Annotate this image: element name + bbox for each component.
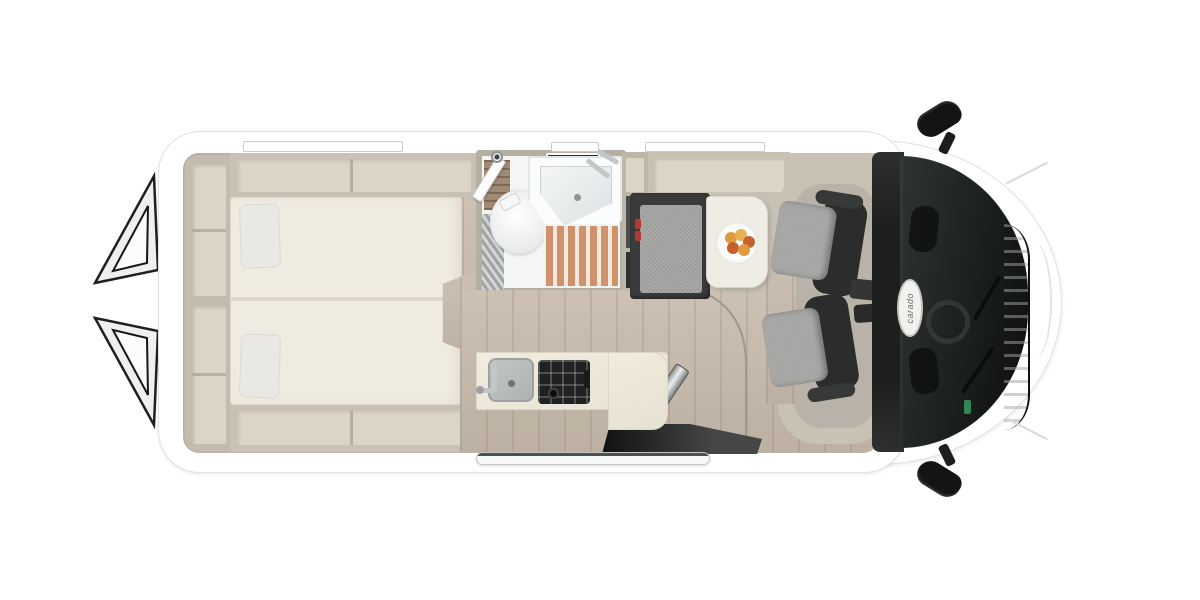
side-window (243, 141, 403, 152)
mirror-arm (938, 131, 957, 155)
bench-cushion (640, 205, 702, 293)
kitchen-counter-extension (608, 352, 668, 430)
headrest-reflection (908, 347, 941, 396)
seat-cushion (760, 306, 829, 388)
wardrobe-shelf (626, 158, 644, 192)
front-grille (1004, 224, 1030, 430)
side-mirror (913, 96, 966, 142)
campervan-floorplan: carado (0, 0, 1200, 600)
hood-seam (1006, 162, 1048, 185)
shelf-divider (192, 229, 226, 232)
side-window (645, 142, 765, 152)
steering-wheel (926, 300, 970, 344)
door-hinge (491, 151, 503, 163)
gas-hob-grate (538, 360, 590, 404)
sink-drain (508, 380, 515, 387)
windshield-sticker (964, 400, 971, 414)
carado-logo-badge: carado (897, 279, 923, 337)
side-window (551, 142, 599, 152)
shelf-divider (192, 373, 226, 376)
seat-cushion (769, 199, 838, 281)
shelf-divider (350, 410, 353, 445)
kitchen-faucet-base (476, 386, 484, 394)
hood-seam (1006, 418, 1048, 441)
shelf-compartment (237, 159, 471, 192)
seatbelt-buckle (635, 231, 641, 241)
seatbelt-buckle (635, 219, 641, 229)
brand-logo-text: carado (905, 293, 915, 324)
bed-divider (230, 297, 462, 301)
sliding-door-open (476, 452, 710, 465)
side-mirror (913, 456, 966, 502)
shower-teak-grate (544, 224, 620, 288)
pillow (239, 203, 281, 268)
hob-lid-handle (584, 370, 590, 388)
hob-burner-knob (548, 388, 559, 399)
sink-drain (574, 194, 581, 201)
shelf-divider (350, 159, 353, 192)
driver-swivel-seat (757, 289, 866, 404)
shelf-compartment (654, 158, 784, 192)
fruit (738, 244, 750, 256)
pillow (239, 333, 281, 398)
